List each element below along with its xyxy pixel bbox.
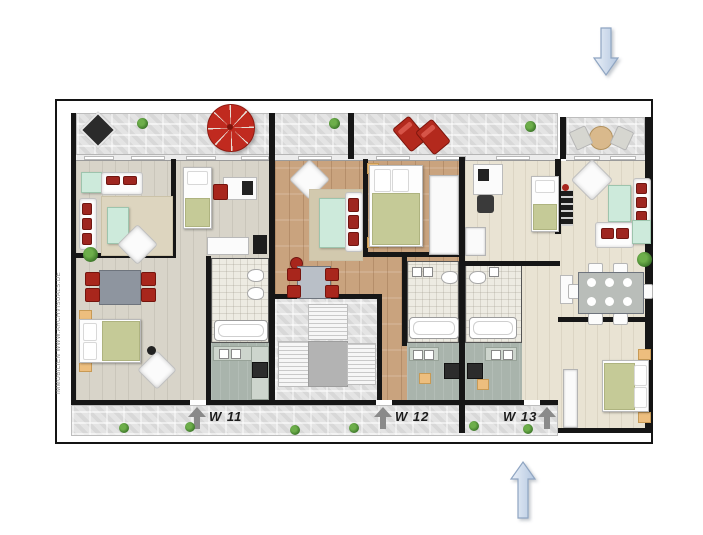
dining-chair bbox=[613, 313, 628, 325]
coffee-table bbox=[608, 185, 631, 222]
presentation-slide: W 11 W 12 W 13 IMMOBILIEN WWW.ARCHVISUAL… bbox=[0, 0, 703, 535]
stair-flight-left bbox=[278, 341, 309, 387]
wall bbox=[269, 113, 275, 405]
bath-sink bbox=[412, 267, 422, 277]
side-table bbox=[632, 220, 651, 244]
tv-unit bbox=[253, 235, 267, 254]
bathtub bbox=[409, 317, 459, 339]
plant bbox=[137, 118, 148, 129]
plant bbox=[329, 118, 340, 129]
dining-chair bbox=[287, 285, 301, 298]
dining-chair bbox=[588, 313, 603, 325]
unit-label-w13: W 13 bbox=[503, 409, 537, 424]
sofa-three-seat bbox=[633, 178, 651, 226]
wall-south bbox=[71, 400, 558, 405]
bidet bbox=[247, 287, 264, 300]
laptop bbox=[478, 169, 489, 181]
stove bbox=[444, 363, 460, 379]
dining-chair bbox=[325, 285, 339, 298]
floorplan-image[interactable]: W 11 W 12 W 13 bbox=[55, 99, 653, 444]
stair-landing bbox=[308, 341, 348, 387]
unit-label-w11: W 11 bbox=[209, 409, 242, 424]
window bbox=[298, 156, 332, 160]
coffee-table bbox=[319, 198, 346, 248]
kitchen-stool bbox=[419, 373, 431, 384]
wardrobe bbox=[563, 369, 578, 428]
plant bbox=[637, 252, 652, 267]
wall bbox=[206, 256, 211, 403]
desk-chair bbox=[477, 195, 494, 213]
desk-chair bbox=[213, 184, 228, 200]
side-table bbox=[81, 172, 102, 193]
walkway-bottom bbox=[71, 405, 558, 436]
sofa-two-seat bbox=[595, 222, 634, 248]
entrance-arrow-w12 bbox=[374, 407, 392, 430]
terrace-table-round bbox=[589, 126, 613, 150]
stair-flight-top bbox=[308, 304, 348, 340]
toilet bbox=[247, 269, 264, 282]
wardrobe bbox=[429, 175, 459, 255]
desk bbox=[473, 164, 503, 195]
window bbox=[131, 156, 165, 160]
stove bbox=[252, 362, 268, 378]
facade-windows bbox=[76, 154, 558, 161]
kitchen-stool bbox=[477, 379, 489, 390]
wall bbox=[558, 428, 651, 433]
bath-sink bbox=[423, 267, 433, 277]
dining-chair bbox=[325, 268, 339, 281]
double-bed bbox=[79, 319, 141, 363]
parasol-center bbox=[227, 124, 233, 130]
side-table-round bbox=[147, 346, 156, 355]
up-arrow-shape[interactable] bbox=[509, 460, 537, 520]
window bbox=[241, 156, 269, 160]
window bbox=[376, 156, 410, 160]
entrance-arrow-w13 bbox=[538, 407, 556, 430]
desk bbox=[223, 177, 257, 200]
plant bbox=[525, 121, 536, 132]
plant bbox=[119, 423, 129, 433]
window bbox=[574, 156, 600, 160]
plant bbox=[290, 425, 300, 435]
laptop bbox=[242, 181, 253, 195]
shelf-unit bbox=[561, 190, 573, 226]
dining-chair bbox=[85, 272, 100, 286]
window bbox=[610, 156, 636, 160]
wall bbox=[459, 157, 465, 433]
single-bed bbox=[183, 167, 212, 229]
facade-windows-right bbox=[566, 154, 645, 161]
stove bbox=[467, 363, 483, 379]
double-bed bbox=[602, 360, 649, 412]
dining-chair bbox=[85, 288, 100, 302]
wall bbox=[402, 256, 407, 346]
toilet bbox=[469, 271, 486, 284]
window bbox=[84, 156, 114, 160]
kitchen-counter bbox=[409, 347, 439, 361]
wall bbox=[71, 113, 76, 405]
terrace-top bbox=[76, 113, 558, 159]
stairwell bbox=[275, 299, 377, 403]
down-arrow-shape[interactable] bbox=[592, 27, 620, 77]
plant bbox=[469, 421, 479, 431]
sofa-three-seat bbox=[79, 198, 97, 250]
wall bbox=[560, 117, 566, 159]
nightstand bbox=[638, 412, 651, 423]
toilet bbox=[441, 271, 458, 284]
wardrobe bbox=[465, 227, 486, 256]
kitchen-counter bbox=[485, 347, 517, 361]
dining-table bbox=[99, 270, 141, 305]
dining-chair bbox=[287, 268, 301, 281]
bathtub bbox=[469, 317, 517, 339]
dining-chair bbox=[141, 288, 156, 302]
floorplan-drawing: W 11 W 12 W 13 bbox=[57, 101, 651, 442]
kitchen-counter bbox=[213, 346, 253, 361]
door-gap-w11 bbox=[190, 400, 206, 405]
wall bbox=[464, 261, 560, 266]
bathtub bbox=[214, 320, 268, 341]
door-gap-w12 bbox=[376, 400, 392, 405]
watermark-text: IMMOBILIEN WWW.ARCHVISUALS.DE bbox=[56, 252, 66, 394]
dining-chair bbox=[141, 272, 156, 286]
single-bed bbox=[531, 176, 559, 232]
plant bbox=[523, 424, 533, 434]
sofa-three-seat bbox=[345, 192, 363, 252]
window bbox=[186, 156, 216, 160]
plant bbox=[83, 247, 98, 262]
unit-label-w12: W 12 bbox=[395, 409, 429, 424]
window bbox=[496, 156, 530, 160]
door-gap-w13 bbox=[524, 400, 540, 405]
vase-red bbox=[562, 184, 569, 191]
plant bbox=[349, 423, 359, 433]
wall bbox=[558, 317, 651, 322]
wall bbox=[348, 113, 354, 159]
sideboard bbox=[207, 237, 249, 255]
stair-flight-right bbox=[347, 343, 376, 385]
double-bed bbox=[369, 165, 423, 247]
dining-table-long bbox=[578, 272, 644, 314]
nightstand bbox=[79, 362, 92, 372]
bath-sink bbox=[489, 267, 499, 277]
plant bbox=[185, 422, 195, 432]
wall bbox=[377, 294, 382, 405]
sofa-two-seat bbox=[101, 172, 143, 195]
nightstand bbox=[638, 349, 651, 360]
